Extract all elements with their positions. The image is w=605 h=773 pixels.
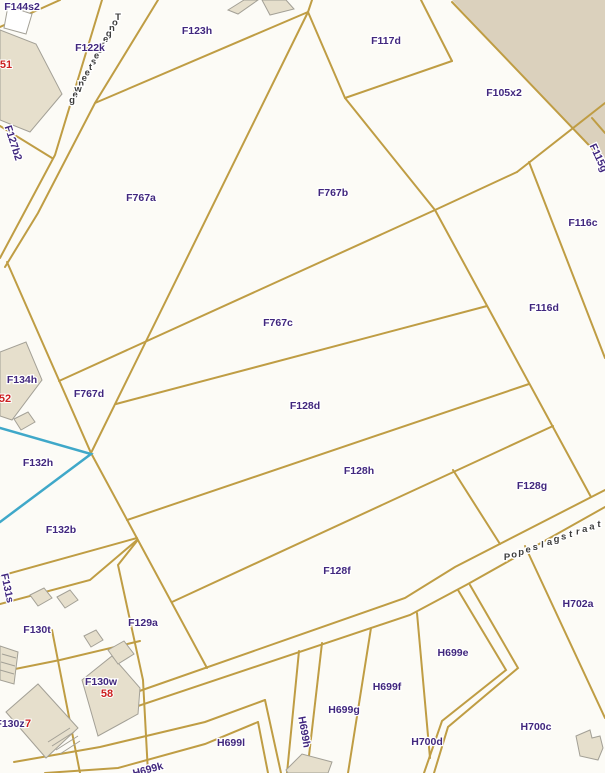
building	[228, 0, 258, 14]
road-edge	[5, 0, 158, 267]
parcel-label-f767c: F767c	[263, 317, 293, 329]
parcel-label-f767d: F767d	[74, 388, 104, 400]
building	[262, 0, 294, 15]
parcel-label-f131s: F131s	[0, 572, 16, 604]
street-char: g	[69, 95, 75, 106]
boundary-line	[287, 651, 299, 773]
street-char: l	[541, 539, 544, 550]
parcel-label-f116c: F116c	[568, 217, 597, 229]
building	[84, 630, 103, 647]
boundary-line	[435, 210, 591, 497]
parcel-label-f105x2: F105x2	[486, 87, 522, 99]
parcel-label-f117d: F117d	[371, 35, 401, 47]
street-char: o	[511, 550, 517, 561]
building	[576, 730, 603, 760]
parcel-label-h699l: H699l	[217, 737, 245, 749]
parcel-label-f130w: F130w	[85, 676, 118, 688]
boundary-line	[529, 162, 605, 358]
parcel-label-h699f: H699f	[373, 681, 402, 693]
parcel-label-h699g: H699g	[328, 704, 360, 716]
parcel-label-f130z: F130z	[0, 718, 25, 730]
building	[286, 754, 332, 773]
house-number-7: 7	[25, 718, 31, 730]
street-char: t	[569, 529, 573, 540]
parcel-label-h699e: H699e	[438, 647, 469, 659]
parcel-label-h700d: H700d	[411, 736, 443, 748]
parcel-label-h699h: H699h	[295, 715, 312, 748]
boundary-line	[127, 384, 529, 520]
highlighted-parcel-outline	[0, 428, 91, 522]
boundary-line	[525, 546, 605, 718]
boundary-line	[348, 628, 371, 773]
boundary-line	[308, 0, 312, 12]
parcel-label-h700c: H700c	[521, 721, 552, 733]
street-char: e	[526, 544, 531, 555]
parcel-label-f128g: F128g	[517, 480, 547, 492]
road-edge	[434, 585, 518, 773]
parcel-labels: F144s2 F122k F127b2 F123h F117d F105x2 F…	[0, 1, 605, 773]
parcel-label-f123h: F123h	[182, 25, 212, 37]
parcel-label-f128d: F128d	[290, 400, 320, 412]
parcel-label-f128f: F128f	[323, 565, 351, 577]
building	[14, 412, 35, 430]
parcel-label-f134h: F134h	[7, 374, 37, 386]
street-char: s	[561, 532, 566, 543]
parcel-boundaries	[0, 0, 605, 773]
building	[0, 646, 18, 684]
building	[0, 30, 62, 132]
parcel-label-h702a: H702a	[563, 598, 594, 610]
parcel-label-f132h: F132h	[23, 457, 53, 469]
road-edge	[265, 700, 281, 773]
street-char: s	[533, 542, 538, 553]
building	[57, 590, 78, 608]
parcel-label-f767a: F767a	[126, 192, 156, 204]
cadastral-map[interactable]: Tongersesteenweg Popeslagstraat F144s2 F…	[0, 0, 605, 773]
boundary-line	[172, 426, 553, 602]
boundary-line	[345, 61, 452, 98]
parcel-label-f144s2: F144s2	[4, 1, 40, 13]
boundary-line	[91, 12, 308, 453]
street-label-popeslagstraat: Popeslagstraat	[504, 519, 602, 563]
street-char: p	[518, 547, 524, 558]
parcel-label-f128h: F128h	[344, 465, 374, 477]
road-edge	[128, 490, 605, 695]
boundary-line	[421, 0, 452, 61]
street-char: g	[554, 534, 560, 545]
house-number-52: 52	[0, 393, 11, 405]
boundary-line	[52, 630, 80, 773]
street-char: a	[589, 522, 595, 533]
street-char: a	[582, 524, 588, 535]
parcel-label-f767b: F767b	[318, 187, 348, 199]
house-number-51: 51	[0, 59, 12, 71]
parcel-label-f127b2: F127b2	[2, 124, 25, 162]
street-char: r	[576, 527, 580, 538]
boundary-line	[453, 470, 500, 544]
parcel-label-f129a: F129a	[128, 617, 158, 629]
street-char: P	[504, 552, 511, 563]
street-char: t	[597, 519, 601, 530]
parcel-label-f132b: F132b	[46, 524, 76, 536]
street-char: a	[547, 537, 553, 548]
boundary-line	[116, 306, 487, 404]
parcel-label-f122k: F122k	[75, 42, 105, 54]
parcel-label-f130t: F130t	[23, 624, 51, 636]
boundary-line	[307, 643, 322, 773]
house-number-58: 58	[101, 688, 113, 700]
parcel-label-f116d: F116d	[529, 302, 559, 314]
road-edge	[258, 722, 268, 773]
